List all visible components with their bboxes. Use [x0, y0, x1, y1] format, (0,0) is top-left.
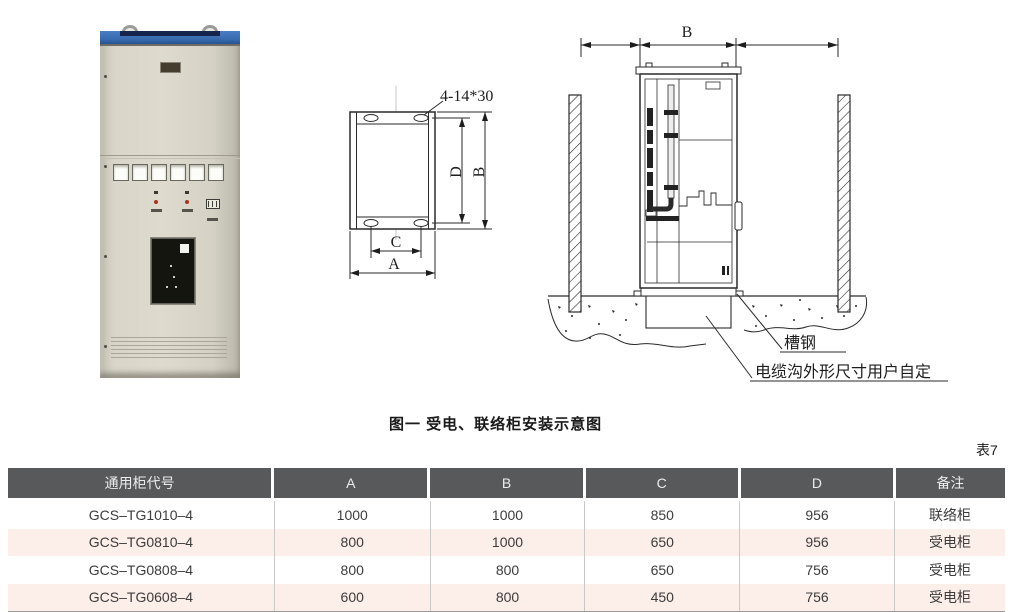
wall-left — [569, 95, 581, 312]
side-view-drawing: B 槽钢 电缆沟外形尺寸用户自定 — [540, 10, 1013, 400]
table-row: GCS–TG0608–4 600 800 450 756 受电柜 — [8, 584, 1005, 612]
cell-b: 800 — [431, 556, 586, 584]
col-header-a: A — [274, 468, 430, 498]
ventilation-louvers — [111, 337, 227, 361]
cell-b: 1000 — [431, 501, 586, 529]
figure-caption: 图一 受电、联络柜安装示意图 — [389, 413, 602, 434]
plan-view-drawing: 4-14*30 D B C A — [330, 80, 515, 295]
cell-c: 650 — [585, 556, 740, 584]
cabinet-top-trim — [120, 31, 221, 36]
indicator-label — [151, 209, 162, 212]
door-seam — [100, 155, 240, 156]
col-header-remark: 备注 — [896, 468, 1005, 498]
indicator-lamp — [185, 191, 189, 194]
indicator-label — [182, 209, 193, 212]
cell-model: GCS–TG0808–4 — [8, 556, 275, 584]
cell-d: 756 — [740, 584, 895, 612]
panel-display — [180, 244, 189, 253]
cable-trench — [646, 296, 731, 328]
cell-remark: 联络柜 — [895, 501, 1005, 529]
wall-right — [838, 95, 850, 312]
indicator-group — [181, 191, 193, 212]
cabinet-photo — [95, 22, 245, 378]
screw-icon — [104, 165, 107, 168]
cell-a: 1000 — [275, 501, 431, 529]
screw-icon — [104, 345, 107, 348]
indicator-label — [207, 218, 218, 221]
table-row: GCS–TG1010–4 1000 1000 850 956 联络柜 — [8, 501, 1005, 529]
meter-window — [170, 164, 186, 181]
cell-c: 850 — [585, 501, 740, 529]
indicator-group — [150, 191, 162, 212]
indicator-lamp — [154, 191, 158, 194]
cell-model: GCS–TG0608–4 — [8, 584, 275, 612]
meter-window — [151, 164, 167, 181]
cabinet-nameplate — [160, 62, 181, 73]
table-row: GCS–TG0810–4 800 1000 650 956 受电柜 — [8, 529, 1005, 557]
table-header-row: 通用柜代号 A B C D 备注 — [8, 468, 1005, 501]
cabinet-top-band — [100, 31, 240, 46]
cell-c: 650 — [585, 529, 740, 557]
col-header-d: D — [741, 468, 896, 498]
dim-label-b: B — [471, 167, 488, 178]
selector-switch — [206, 199, 220, 209]
cabinet-section — [636, 63, 742, 288]
dim-label-d: D — [448, 166, 465, 178]
control-panel — [151, 238, 195, 304]
cell-d: 956 — [740, 529, 895, 557]
meter-window — [208, 164, 224, 181]
cell-a: 600 — [275, 584, 431, 612]
screw-icon — [104, 255, 107, 258]
col-header-model: 通用柜代号 — [8, 468, 274, 498]
cell-model: GCS–TG1010–4 — [8, 501, 275, 529]
channel-steel-label: 槽钢 — [784, 334, 816, 352]
cell-b: 800 — [431, 584, 586, 612]
dimension-table: 通用柜代号 A B C D 备注 GCS–TG1010–4 1000 1000 … — [8, 468, 1005, 612]
cell-model: GCS–TG0810–4 — [8, 529, 275, 557]
dim-label-a: A — [388, 256, 400, 273]
cell-remark: 受电柜 — [895, 529, 1005, 557]
cell-a: 800 — [275, 529, 431, 557]
hole-spec-label: 4-14*30 — [440, 88, 493, 105]
table-row: GCS–TG0808–4 800 800 650 756 受电柜 — [8, 556, 1005, 584]
cell-a: 800 — [275, 556, 431, 584]
cell-remark: 受电柜 — [895, 584, 1005, 612]
indicator-lamp-red — [185, 200, 189, 204]
meter-window — [189, 164, 205, 181]
meter-window — [113, 164, 129, 181]
door-seam — [100, 158, 240, 159]
cable-trench-label: 电缆沟外形尺寸用户自定 — [755, 363, 931, 381]
cell-b: 1000 — [431, 529, 586, 557]
col-header-c: C — [586, 468, 741, 498]
cell-remark: 受电柜 — [895, 556, 1005, 584]
col-header-b: B — [430, 468, 585, 498]
screw-icon — [104, 75, 107, 78]
dim-label-b-side: B — [682, 24, 693, 41]
table-tag: 表7 — [976, 440, 998, 460]
cell-d: 956 — [740, 501, 895, 529]
indicator-lamp-red — [154, 200, 158, 204]
cabinet-front — [100, 31, 240, 378]
meter-window — [132, 164, 148, 181]
dim-label-c: C — [391, 234, 402, 251]
cell-d: 756 — [740, 556, 895, 584]
meter-row — [113, 164, 224, 181]
cell-c: 450 — [585, 584, 740, 612]
